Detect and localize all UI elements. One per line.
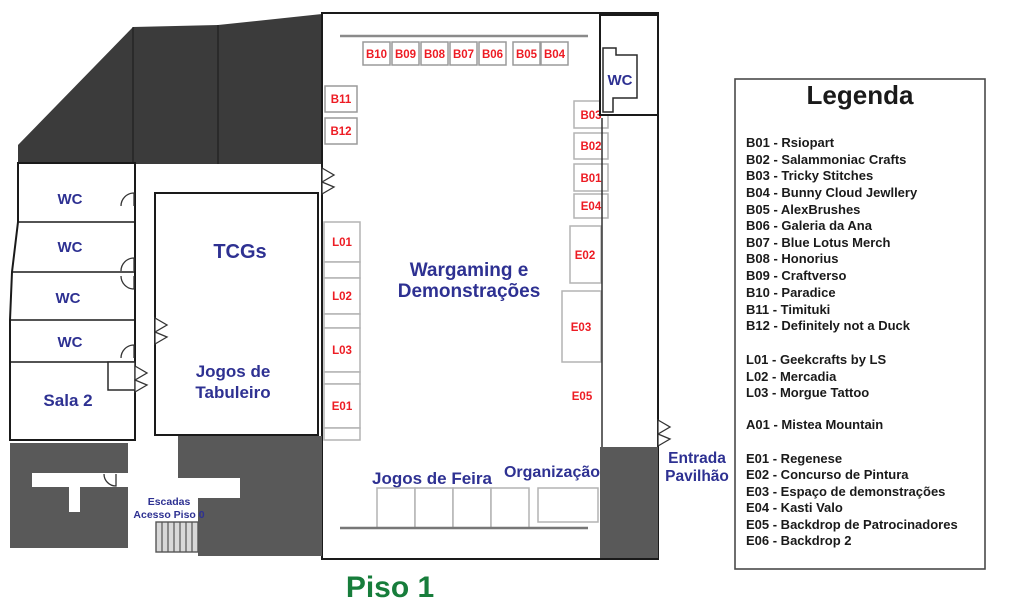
legend-item: B11 - Timituki (746, 302, 830, 317)
booth-label: B07 (453, 49, 474, 61)
booth-label: B02 (580, 141, 601, 153)
door-leaf (135, 366, 147, 380)
booth-label: L03 (332, 345, 352, 357)
table-segment (324, 314, 360, 328)
room-label-wc2: WC (58, 239, 83, 256)
booth-label: B01 (580, 173, 602, 185)
top-booth-row: B10 B09 B08 B07 B06 B05 B04 (363, 42, 568, 65)
sala2-closet (108, 362, 135, 390)
l-column-booths: L01 L02 L03 E01 (324, 222, 360, 440)
legend-item: B04 - Bunny Cloud Jewllery (746, 185, 918, 200)
booth-label: B09 (395, 49, 416, 61)
feira-table (415, 488, 453, 528)
legend-box: Legenda B01 - Rsiopart B02 - Salammoniac… (735, 79, 985, 569)
wall-block (10, 443, 128, 473)
booth-label: B12 (330, 126, 351, 138)
wc-top-right: WC (600, 15, 658, 115)
wall-block (178, 436, 240, 478)
door-leaf (658, 434, 670, 446)
room-label-wc: WC (608, 72, 633, 89)
entrance-wall-block (600, 447, 658, 558)
escadas-label-line2: Acesso Piso 0 (133, 509, 204, 521)
legend-item: E05 - Backdrop de Patrocinadores (746, 517, 958, 532)
wall-block (198, 498, 240, 556)
feira-table (491, 488, 529, 528)
room-label-wargaming-line1: Wargaming e (410, 260, 529, 281)
wall-block (32, 487, 69, 548)
room-label-tcgs: TCGs (213, 241, 266, 263)
entrada-label-line2: Pavilhão (665, 468, 729, 485)
booth-label: B06 (482, 49, 503, 61)
wall-block (69, 512, 80, 548)
legend-item: L02 - Mercadia (746, 369, 837, 384)
room-label-wc3: WC (56, 290, 81, 307)
legend-item: B12 - Definitely not a Duck (746, 318, 911, 333)
booth-label: L01 (332, 237, 352, 249)
floor-plan-svg: B10 B09 B08 B07 B06 B05 B04 B11 B12 L01 … (0, 0, 1024, 609)
area-e05-label: E05 (572, 391, 593, 403)
room-label-feira: Jogos de Feira (372, 469, 493, 488)
room-label-wc4: WC (58, 334, 83, 351)
wall-block (10, 473, 32, 548)
table-segment (324, 428, 360, 440)
legend-item: B01 - Rsiopart (746, 135, 835, 150)
room-label-tabuleiro-line1: Jogos de (196, 362, 271, 381)
legend-item: B03 - Tricky Stitches (746, 168, 873, 183)
room-label-wc1: WC (58, 191, 83, 208)
room-label-organizacao: Organização (504, 464, 600, 481)
upper-left-wall-block (18, 14, 322, 164)
legend-item: B05 - AlexBrushes (746, 202, 860, 217)
tcg-room: TCGs Jogos de Tabuleiro (155, 193, 318, 435)
door-leaf (135, 380, 147, 392)
booth-label: B11 (331, 94, 352, 106)
wall-block (80, 487, 128, 548)
area-label: E03 (571, 322, 591, 334)
legend-item: L01 - Geekcrafts by LS (746, 352, 886, 367)
booth-label: B05 (516, 49, 538, 61)
booth-label: E01 (332, 401, 353, 413)
left-rooms-column: WC WC WC WC Sala 2 (10, 163, 147, 440)
booth-label: L02 (332, 291, 352, 303)
wall-polygon (18, 14, 322, 164)
table-segment (324, 262, 360, 278)
table-segment (324, 372, 360, 384)
escadas-label-line1: Escadas (148, 496, 191, 508)
organizacao-table (538, 488, 598, 522)
sala2-double-door-icon (135, 366, 147, 392)
door-arc-icon (104, 474, 116, 486)
room-label-tabuleiro-line2: Tabuleiro (195, 383, 270, 402)
room-label-sala2: Sala 2 (43, 391, 92, 410)
door-leaf (658, 420, 670, 434)
legend-item: B08 - Honorius (746, 251, 838, 266)
legend-item: L03 - Morgue Tattoo (746, 385, 869, 400)
legend-item: B07 - Blue Lotus Merch (746, 235, 891, 250)
feira-table (377, 488, 415, 528)
area-label: E02 (575, 250, 595, 262)
floor-plan-page: B10 B09 B08 B07 B06 B05 B04 B11 B12 L01 … (0, 0, 1024, 609)
booth-label: B10 (366, 49, 387, 61)
booth-label: E04 (581, 201, 602, 213)
booth-label: B08 (424, 49, 446, 61)
legend-item: E03 - Espaço de demonstrações (746, 484, 945, 499)
wall-block (240, 436, 322, 556)
legend-item: B10 - Paradice (746, 285, 836, 300)
room-label-wargaming-line2: Demonstrações (398, 281, 541, 302)
legend-item: E06 - Backdrop 2 (746, 533, 852, 548)
entrance-double-door-icon (658, 420, 670, 446)
legend-item: B02 - Salammoniac Crafts (746, 152, 906, 167)
entrada-label-line1: Entrada (668, 450, 726, 467)
legend-item: B09 - Craftverso (746, 268, 846, 283)
legend-item: E02 - Concurso de Pintura (746, 467, 909, 482)
legend-item: A01 - Mistea Mountain (746, 417, 883, 432)
legend-title: Legenda (807, 80, 914, 110)
legend-item: B06 - Galeria da Ana (746, 218, 873, 233)
booth-label: B03 (580, 110, 601, 122)
booth-label: B04 (544, 49, 566, 61)
stairs-area: Escadas Acesso Piso 0 (133, 496, 204, 552)
feira-table (453, 488, 491, 528)
floor-title: Piso 1 (346, 571, 434, 604)
legend-item: E04 - Kasti Valo (746, 500, 843, 515)
legend-item: E01 - Regenese (746, 451, 842, 466)
